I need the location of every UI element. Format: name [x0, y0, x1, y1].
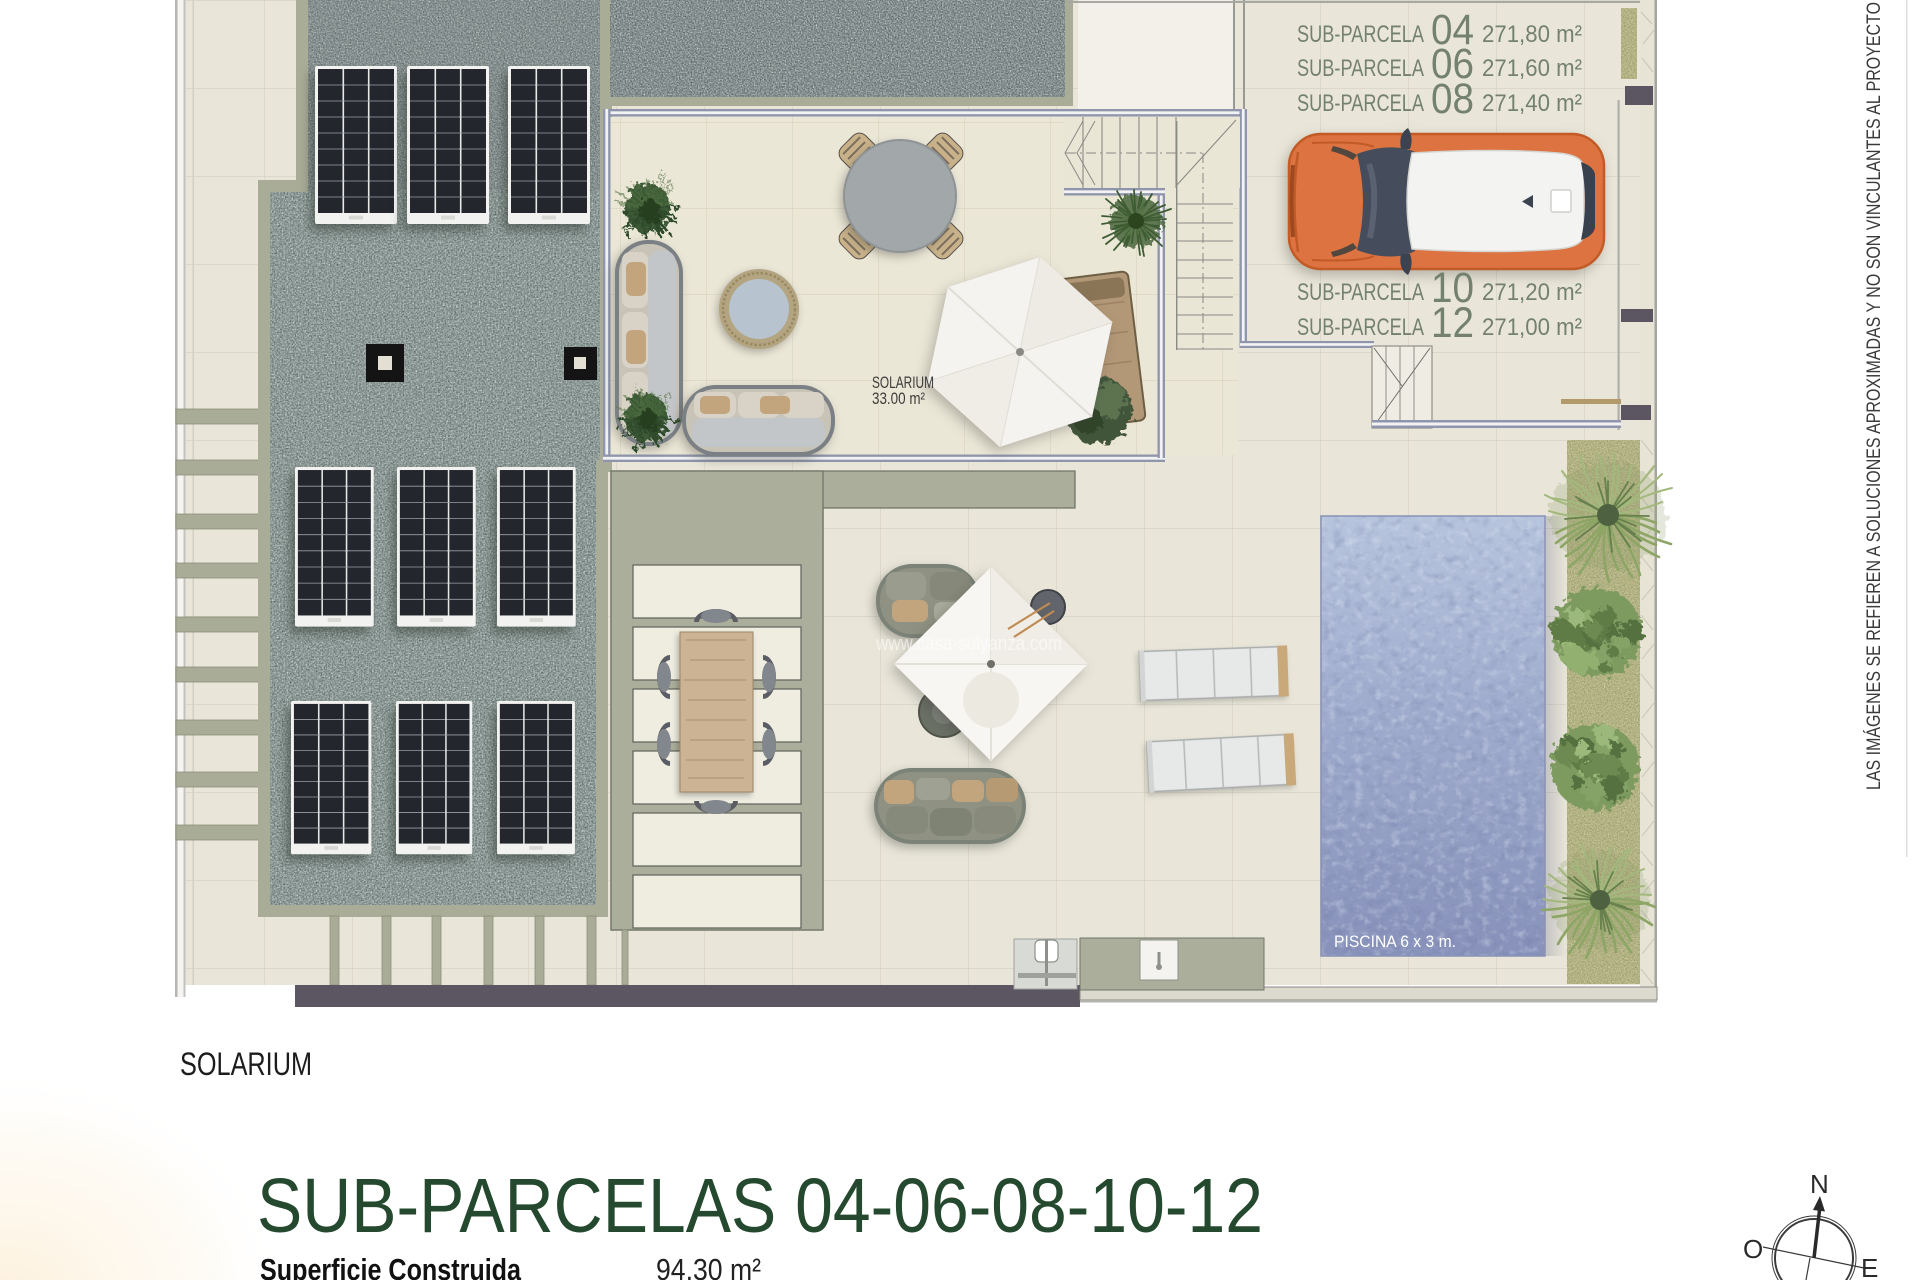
svg-text:SUB-PARCELAS 04-06-08-10-12: SUB-PARCELAS 04-06-08-10-12 [257, 1163, 1263, 1249]
svg-text:271,60 m²: 271,60 m² [1482, 55, 1582, 82]
svg-text:271,00 m²: 271,00 m² [1482, 314, 1582, 341]
svg-text:271,80 m²: 271,80 m² [1482, 21, 1582, 48]
svg-text:N: N [1810, 1169, 1829, 1199]
svg-text:12: 12 [1431, 299, 1474, 347]
svg-text:www.casa-solyanza.com: www.casa-solyanza.com [875, 633, 1062, 655]
svg-text:SUB-PARCELA: SUB-PARCELA [1297, 55, 1424, 82]
svg-text:E: E [1861, 1253, 1878, 1280]
svg-text:Superficie Construida: Superficie Construida [260, 1252, 522, 1280]
svg-text:O: O [1743, 1234, 1763, 1264]
svg-text:271,40 m²: 271,40 m² [1482, 90, 1582, 117]
svg-text:LAS IMÁGENES SE REFIEREN A SOL: LAS IMÁGENES SE REFIEREN A SOLUCIONES AP… [1862, 2, 1885, 790]
svg-text:08: 08 [1431, 75, 1474, 123]
svg-text:PISCINA 6 x 3 m.: PISCINA 6 x 3 m. [1334, 932, 1456, 951]
svg-text:SUB-PARCELA: SUB-PARCELA [1297, 279, 1424, 306]
svg-text:SOLARIUM: SOLARIUM [180, 1046, 312, 1082]
svg-text:33.00 m²: 33.00 m² [872, 389, 925, 408]
svg-text:SUB-PARCELA: SUB-PARCELA [1297, 90, 1424, 117]
svg-text:94,30 m²: 94,30 m² [656, 1252, 761, 1280]
svg-text:SUB-PARCELA: SUB-PARCELA [1297, 314, 1424, 341]
svg-text:271,20 m²: 271,20 m² [1482, 279, 1582, 306]
svg-text:SUB-PARCELA: SUB-PARCELA [1297, 21, 1424, 48]
